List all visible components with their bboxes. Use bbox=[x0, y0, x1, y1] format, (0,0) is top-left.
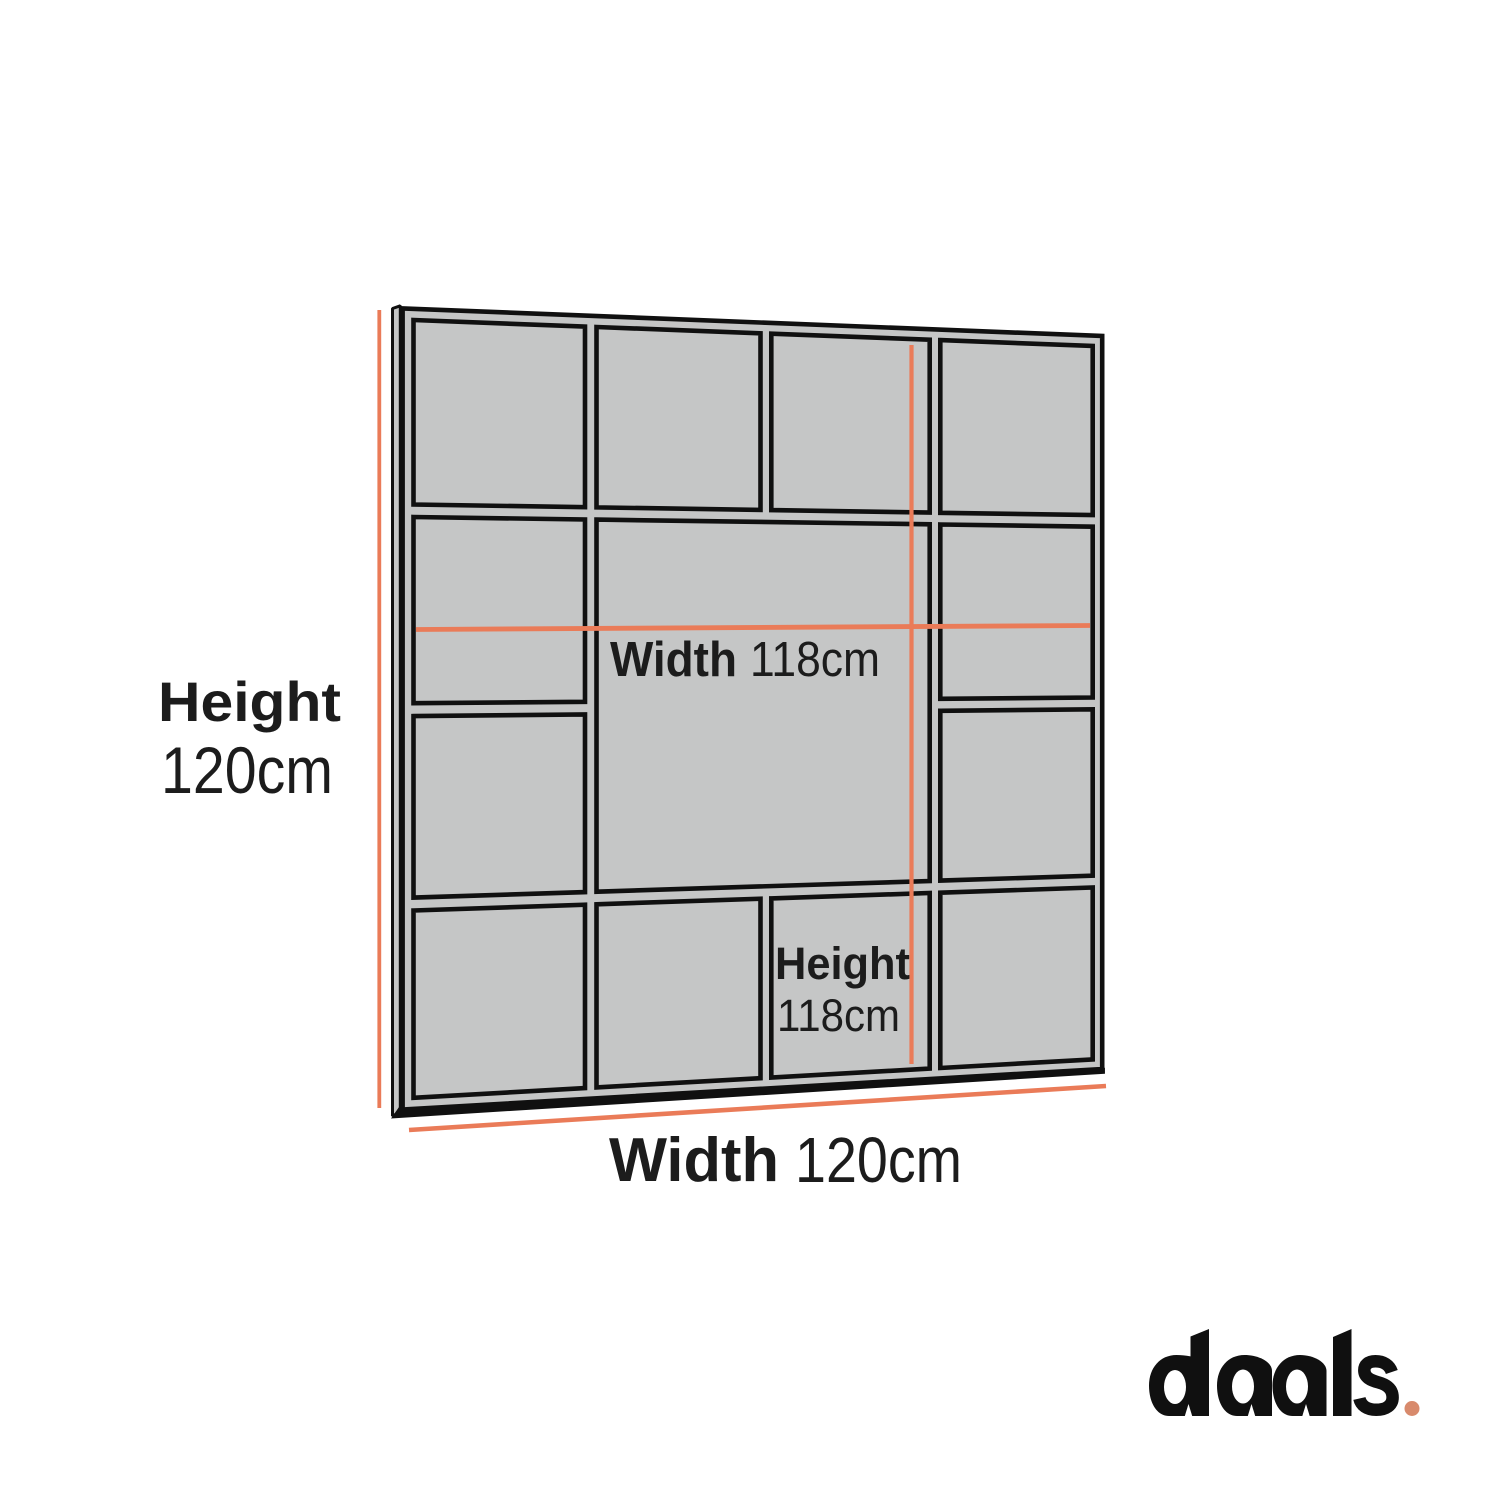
svg-text:Width: Width bbox=[609, 1126, 779, 1195]
svg-text:Height: Height bbox=[158, 670, 341, 733]
svg-text:118cm: 118cm bbox=[777, 990, 900, 1041]
svg-text:118cm: 118cm bbox=[750, 633, 880, 687]
svg-text:Height: Height bbox=[775, 938, 910, 989]
svg-text:Width: Width bbox=[610, 633, 737, 687]
svg-text:120cm: 120cm bbox=[795, 1124, 962, 1196]
svg-text:120cm: 120cm bbox=[161, 733, 333, 807]
